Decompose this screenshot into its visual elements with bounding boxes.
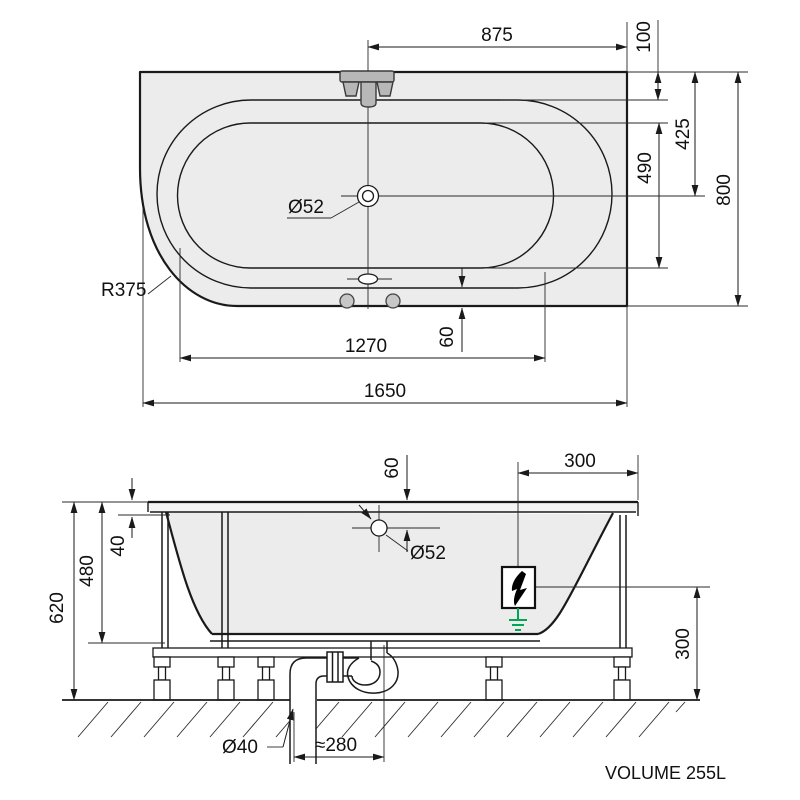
- dim-300-top-label: 300: [564, 451, 596, 472]
- trap-offset-label: ≈280: [315, 735, 357, 756]
- elevation-view: Ø52 60 300 300 620: [47, 451, 710, 764]
- dim-875-label: 875: [481, 25, 513, 46]
- radius-leader: [148, 276, 171, 294]
- ground-hatching: [78, 702, 685, 737]
- foot: [218, 657, 234, 700]
- plan-view: Ø52 R375 875 100 425 490 800 60: [101, 20, 748, 407]
- dim-60-elev-label: 60: [382, 457, 403, 478]
- dim-800-label: 800: [714, 174, 735, 206]
- dim-40-label: 40: [108, 535, 129, 556]
- drain-diameter-label: Ø52: [288, 197, 324, 218]
- deck-fill: [148, 502, 638, 512]
- foot: [154, 657, 170, 700]
- pipe-diameter-label: Ø40: [222, 737, 258, 758]
- dim-425-label: 425: [673, 118, 694, 150]
- volume-label: VOLUME 255L: [605, 763, 726, 783]
- dim-490-label: 490: [635, 152, 656, 184]
- dim-60-plan-label: 60: [437, 326, 458, 347]
- dim-1650-label: 1650: [364, 381, 406, 402]
- electrical-box-icon: [502, 567, 535, 608]
- foot: [258, 657, 274, 700]
- dim-100-label: 100: [634, 21, 655, 53]
- union-nut: [327, 652, 343, 682]
- foot: [486, 657, 502, 700]
- bathtub-technical-drawing: Ø52 R375 875 100 425 490 800 60: [0, 0, 800, 800]
- drain-diameter-elev-label: Ø52: [410, 543, 446, 564]
- fitting-circle-right: [386, 294, 400, 308]
- fitting-circle-left: [340, 294, 354, 308]
- adjustable-feet: [154, 657, 630, 700]
- dim-300-right-label: 300: [673, 628, 694, 660]
- drain-symbol-plan: [358, 186, 379, 207]
- dim-480-label: 480: [77, 555, 98, 587]
- dim-620-label: 620: [47, 592, 68, 624]
- corner-radius-label: R375: [101, 280, 146, 301]
- technical-drawing-page: Ø52 R375 875 100 425 490 800 60: [0, 0, 800, 800]
- basin-fill: [166, 512, 612, 634]
- dim-1270-label: 1270: [345, 336, 387, 357]
- foot: [614, 657, 630, 700]
